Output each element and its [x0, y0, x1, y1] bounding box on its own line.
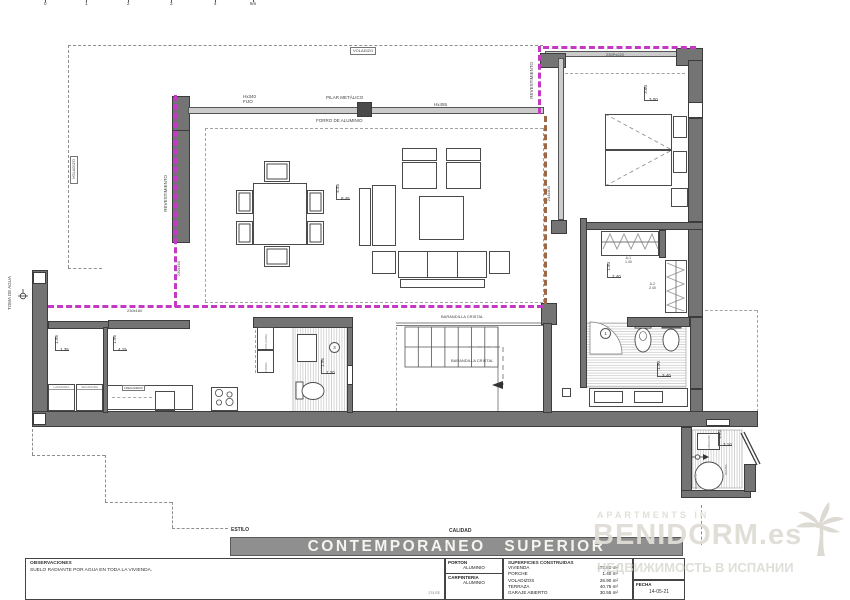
fecha-value: 14-05-21 [634, 589, 684, 595]
wall [659, 230, 666, 258]
chair [236, 190, 253, 214]
dim-h: 1.35 [60, 347, 69, 352]
side-table [489, 251, 510, 274]
chair [236, 221, 253, 245]
revestimiento-left-label: REVESTIMIENTO [164, 175, 169, 212]
railing-label: BARANDILLA CRISTAL [451, 359, 493, 364]
railing-label: BARANDILLA CRISTAL [441, 315, 483, 320]
window-size-label: 230Px220 [606, 53, 624, 58]
dim-bedroom: 3.60 3.00 [644, 87, 658, 101]
wall-closet-right [688, 222, 703, 317]
window-box [688, 102, 703, 118]
wall-kitchen-top [48, 321, 110, 329]
window-size-label: 230x160 [127, 309, 142, 314]
voladizo-top-label: VOLADIZO [350, 47, 376, 55]
a2-size: 2.40 [649, 286, 656, 290]
door-size-label: 244x400 [547, 186, 551, 201]
dim-v: 1.90 [657, 361, 662, 370]
dim-living: 4.45 8.45 [336, 186, 350, 200]
door-gap [347, 365, 353, 385]
materials-box: PORTON ALUMINIO CARPINTERIA ALUMINIO [445, 558, 503, 600]
dim-h: 3.40 [662, 373, 671, 378]
vanity-sink [594, 391, 623, 403]
door-gap [706, 419, 730, 426]
armchair-back [402, 148, 437, 161]
empty-box [633, 558, 685, 580]
chair [307, 190, 324, 214]
pilar-label: PILAR METÁLICO [326, 95, 363, 100]
washer-label: LAVADORA [49, 385, 74, 390]
window-size-label: 230x160 [177, 261, 181, 276]
wall-corridor [580, 218, 587, 388]
bed [605, 150, 672, 186]
dim-v: 4.45 [336, 184, 341, 193]
window-band-bedroom-left [558, 58, 564, 220]
dim-v: 1.95 [321, 358, 326, 367]
tall-unit: COLUMNA [257, 327, 274, 350]
bed [605, 114, 672, 150]
tall-unit: FRIGO. [257, 350, 274, 373]
wall-quoin [33, 413, 46, 425]
kitchen-counter [107, 385, 193, 410]
wall-bedroom-right [688, 118, 703, 222]
ref-circle-aseo: 3 [329, 342, 340, 353]
dim-v: 1.95 [55, 335, 60, 344]
fijo: FIJO [243, 99, 256, 104]
fecha-box: FECHA 14-05-21 [633, 580, 685, 600]
cladding-magenta-right [538, 46, 541, 114]
wardrobe-a2-label: A-2 2.40 [649, 282, 656, 290]
voladizo-left-text: VOLADIZO [71, 159, 77, 179]
dining-table [253, 183, 307, 245]
nightstand [673, 116, 687, 138]
hall-box [562, 388, 571, 397]
wall-tech-bottom [681, 490, 751, 498]
cooktop [211, 387, 238, 411]
observaciones-text: SUELO RADIANTE POR AGUA EN TODA LA VIVIE… [30, 568, 440, 573]
carpinteria-value: ALUMINIO [446, 580, 502, 585]
wall-closet-bottom [627, 317, 690, 327]
style-quality-bar: CONTEMPORANEO SUPERIOR [230, 537, 683, 556]
dim-h: 3.10 [723, 442, 732, 447]
wardrobe-a1 [601, 231, 659, 256]
tall-unit-label: FRIGO. [264, 352, 268, 372]
dim-laundry: 1.95 1.35 [55, 337, 69, 351]
cladding-magenta-bottom [48, 305, 543, 308]
voladizo-left-label: VOLADIZO [70, 156, 78, 184]
dim-v: 1.40 [607, 262, 612, 271]
wall-quoin [33, 272, 46, 284]
steel-pillar [357, 102, 372, 117]
nightstand [673, 151, 687, 173]
chair [264, 246, 290, 267]
wall-exterior-left [32, 270, 48, 412]
wall-bath-right [690, 317, 703, 389]
hx340-label: Hx340 FIJO [243, 94, 256, 104]
dim-v: 3.60 [644, 85, 649, 94]
calidad-label: CALIDAD [449, 528, 472, 534]
armchair [446, 162, 481, 189]
water-tank [695, 462, 723, 490]
wall-tech-right [744, 464, 756, 492]
dryer-label: SECADORA [77, 385, 102, 390]
wall [541, 303, 557, 325]
staircase [396, 323, 545, 411]
sup-value: 30.55 m² [600, 590, 628, 596]
dryer: SECADORA [76, 384, 103, 411]
wall-kitchen-top [108, 320, 190, 329]
washing-machine: LAVADORA [48, 384, 75, 411]
nightstand [671, 188, 688, 207]
dim-tech: 1.50 3.10 [718, 432, 732, 446]
a1-size: 1.40 [625, 260, 632, 264]
wall [690, 389, 703, 413]
dim-h: 4.15 [118, 347, 127, 352]
aseo-basin [297, 334, 317, 362]
armchair [402, 162, 437, 189]
kitchen-island [155, 391, 175, 411]
dim-aseo: 1.95 1.20 [321, 360, 335, 374]
fecha-label: FECHA [634, 581, 684, 587]
gate-diagonal-door [741, 432, 760, 465]
dim-h: 8.45 [341, 196, 350, 201]
sofa-divider [457, 251, 458, 278]
wall-bedroom-right [688, 60, 703, 104]
coffee-table [419, 196, 464, 240]
estilo-label: ESTILO [231, 527, 249, 533]
chair [264, 161, 290, 182]
observaciones-box: OBSERVACIONES SUELO RADIANTE POR AGUA EN… [25, 558, 445, 600]
observaciones-label: OBSERVACIONES [30, 561, 440, 566]
wardrobe-a2 [665, 260, 687, 313]
sup-name: GARAJE ABIERTO [508, 590, 547, 596]
plan-linework [0, 0, 850, 600]
ref-circle-bath: 1 [600, 328, 611, 339]
dim-h: 3.00 [649, 97, 658, 102]
floor-plan-sheet: 0 1 2 3 4 5m [0, 0, 850, 600]
toma-agua-label: TOMA DE AGUA [8, 276, 13, 310]
superficies-box: SUPERFICIES CONSTRUIDAS VIVIENDA 170.80 … [503, 558, 633, 600]
dim-v: 1.50 [718, 430, 723, 439]
wall-closet-top [586, 222, 703, 230]
sofa-back-cushions [400, 279, 485, 288]
armchair-back [446, 148, 481, 161]
forro-label: FORRO DE ALUMINIO [316, 118, 363, 123]
wall-exterior-bottom [32, 411, 758, 427]
tall-unit-label: COLUMNA [264, 329, 268, 349]
tank-label: DEPOSITO [694, 465, 698, 489]
wall-tech-left [681, 427, 692, 498]
superficie-row: GARAJE ABIERTO 30.55 m² [508, 590, 628, 596]
tech-cabinet-label: ARMARIO [707, 435, 711, 449]
dim-kitchen: 1.95 4.15 [113, 337, 127, 351]
sofa-divider [427, 251, 428, 278]
pump-label: BOMBA [724, 455, 728, 475]
dim-h: 1.20 [326, 370, 335, 375]
sofa [398, 251, 487, 278]
dim-bath: 1.90 3.40 [657, 363, 671, 377]
sliding-door-244x400 [544, 116, 547, 304]
wall [551, 220, 567, 234]
chair [307, 221, 324, 245]
dim-v: 1.95 [113, 335, 118, 344]
aseo-toilet [296, 382, 324, 400]
wall-stairs-right [543, 323, 552, 413]
porton-value: ALUMINIO [446, 565, 502, 574]
chaise [359, 188, 371, 246]
water-intake-symbol [18, 289, 28, 299]
ref-code: 274 EE [429, 591, 440, 595]
vanity-sink [634, 391, 663, 403]
wardrobe-a1-label: A-1 1.40 [625, 256, 632, 264]
style-quality-value: CONTEMPORANEO SUPERIOR [308, 538, 606, 556]
chaise [372, 185, 396, 246]
dim-h: 2.40 [612, 274, 621, 279]
hx455-label: Hx455 [434, 102, 447, 107]
sink-label: FREGADERO [122, 385, 145, 391]
side-table [372, 251, 396, 274]
cladding-magenta-top [543, 46, 696, 49]
revestimiento-right-label: REVESTIMIENTO [530, 62, 535, 99]
dim-closet: 1.40 2.40 [607, 264, 621, 278]
